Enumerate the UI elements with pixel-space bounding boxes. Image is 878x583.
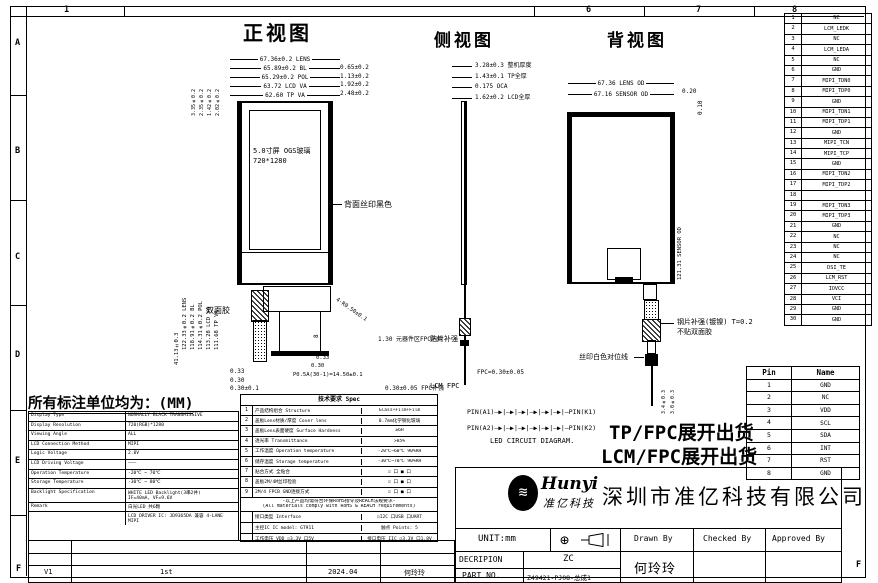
shipping-note-tp: TP/FPC展开出货 [609, 418, 754, 445]
fpc-dim: 0.30 [311, 363, 324, 369]
zone-tick [10, 95, 26, 96]
brand-name: Hunyi [541, 474, 598, 494]
side-dims: 3.28±0.3 整机厚度1.43±0.1 TP全厚0.175 OCA1.62±… [475, 61, 532, 104]
pin-name: SCL [792, 418, 859, 429]
pin-number: 27 [785, 284, 802, 293]
spec-label: Remark [29, 503, 126, 512]
spec-value: -20℃ ~ 70℃ [126, 470, 238, 479]
pin-name: MIPI_TDN1 [802, 108, 871, 116]
tp-pin-row: 5 SDA [747, 430, 859, 443]
pin-name: VCI [802, 295, 871, 303]
lcm-pin-row: 16 MIPI_TDN2 [784, 169, 872, 180]
revision-date: 2024.04 [328, 568, 358, 576]
leader-line [333, 204, 342, 205]
spec-row: Operation Temperature -20℃ ~ 70℃ [29, 470, 238, 480]
row-number: 8 [241, 477, 253, 486]
led-diodes: ―▶|―▶|―▶|―▶|―▶|―▶|― [494, 408, 568, 416]
zone-letter: E [15, 456, 20, 466]
row-number [241, 512, 253, 522]
lcm-pin-row: 3 NC [784, 34, 872, 45]
revision-desc: 1st [160, 568, 173, 576]
tp-spec-row: 4 透光率 Transmittance >85% [241, 437, 437, 447]
frame-zone-col-line [26, 6, 27, 576]
zone-letter: B [15, 146, 20, 156]
title-block-line [550, 528, 551, 551]
tail-dim: 3.0±0.3 [670, 378, 676, 414]
lcm-pin-row: 26 LCM_RST [784, 273, 872, 284]
lcm-pin-row: 10 MIPI_TDN1 [784, 107, 872, 118]
side-profile-bar [461, 101, 467, 285]
dim-line: 62.60 TP VA [230, 91, 340, 100]
title-block-line [523, 551, 524, 583]
spec-label [29, 512, 126, 525]
fpc-dim: 0.30 [230, 377, 259, 386]
pin-name: MIPI_TCP [802, 150, 871, 158]
pin-name: IOVCC [802, 285, 871, 293]
tp-spec-row: 7 贴合方式 全贴合 ☑ 口 ■ 口 [241, 467, 437, 477]
dim-line: 67.36±0.2 LENS [230, 55, 340, 64]
dim-line: 67.36 LENS OD [568, 78, 674, 89]
pin-name: MIPI_TDP3 [802, 212, 871, 220]
spec-row: Backlight Specification WHITE LED Backli… [29, 489, 238, 503]
spec-label: Viewing Angle [29, 431, 126, 440]
fpc-dim: 0.30±0.1 [230, 385, 259, 394]
spec-label: Operation Temperature [29, 470, 126, 479]
pin-name: MIPI_TDN3 [802, 202, 871, 210]
lcm-pin-row: 29 GND [784, 304, 872, 315]
back-silk-pad [645, 354, 658, 366]
lcm-pin-row: 7 MIPI_TDN0 [784, 75, 872, 86]
title-block-line [693, 528, 694, 583]
front-inner-line [239, 252, 331, 253]
led-pin-left: PIN(A2) [467, 424, 494, 432]
row-number [241, 523, 253, 533]
led-circuit: PIN(A1)―▶|―▶|―▶|―▶|―▶|―▶|―PIN(K1) PIN(A2… [467, 404, 596, 436]
tp-spec-row: 3 盖板Lens表面硬度 Surface Hardness ≥6H [241, 426, 437, 436]
zone-tick [534, 6, 535, 16]
fpc-height-dim: 8 [313, 316, 320, 338]
zone-tick [754, 6, 755, 16]
back-ic-pad [615, 277, 633, 283]
lcm-pin-row: 2 LCM_LEDK [784, 23, 872, 34]
led-pin-right: PIN(K2) [569, 424, 596, 432]
lcm-spec-table: Display Type NORMALLY BLACK TRANSMISSIVE… [28, 411, 239, 541]
frame-zone-row-line [10, 16, 864, 17]
fpc-dim: 0.33 [230, 368, 259, 377]
row-value: Glass+Film+Film [362, 408, 437, 413]
row-label: 工作温度 Operation temperature [253, 448, 362, 454]
tp-pin-row: 1 GND [747, 380, 859, 393]
row-label: 贴合方式 全贴合 [253, 469, 362, 475]
front-active-area [249, 110, 321, 250]
tail-dim: 3.4±0.3 [661, 378, 667, 414]
pin-number: 6 [747, 443, 792, 455]
decripion-label: DECRIPION [459, 555, 502, 564]
front-left-dims: 122.33±0.2 LENS118.91±0.2 BL114.31±0.2 P… [182, 128, 220, 350]
zone-letter: C [15, 252, 20, 262]
dim-label: 2.48±0.2 [340, 90, 369, 99]
revision-line [28, 565, 455, 566]
row-value: -20℃~60℃ 90%RH [362, 449, 437, 454]
unit-label: UNIT:mm [478, 534, 516, 544]
lcm-pin-row: 27 IOVCC [784, 283, 872, 294]
revision-version: V1 [44, 568, 52, 576]
row-value: ☑ 口 ■ 口 [362, 489, 437, 495]
leader-line [452, 87, 472, 88]
pin-name: MIPI_TDN0 [802, 77, 871, 85]
pin-number: 13 [785, 139, 802, 148]
spec-label: Display Resolution [29, 422, 126, 431]
pin-name: DSI_TE [802, 264, 871, 272]
tp-spec-note: -以上产品均需符合环保RoHS指令及REACH法规要求- (All materi… [241, 498, 437, 512]
pin-number: 18 [785, 191, 802, 200]
pin-number: 7 [747, 455, 792, 467]
row-label: 产品结构组合 Structure [253, 408, 362, 414]
lcm-pin-row: 11 MIPI_TDP1 [784, 117, 872, 128]
pin-name: NC [802, 14, 871, 22]
pin-name: GND [802, 129, 871, 137]
spec-label: Storage Temperature [29, 479, 126, 488]
front-screen-text: 5.0寸屏 OGS玻璃 720*1280 [253, 146, 311, 166]
dim-label: 118.91±0.2 BL [190, 128, 196, 350]
spec-row: LCD Connection Method MIPI [29, 441, 238, 451]
dim-label: 114.31±0.2 POL [198, 128, 204, 350]
tp-spec-row: 6 储存温度 Storage temperature -30℃~70℃ 90%R… [241, 457, 437, 467]
pin-number: 4 [747, 417, 792, 429]
pin-name: LCM_LEDK [802, 25, 871, 33]
lcm-pin-row: 17 MIPI_TDP2 [784, 179, 872, 190]
screen-size-label: 5.0寸屏 OGS玻璃 [253, 146, 311, 156]
row-label: 透光率 Transmittance [253, 438, 362, 444]
part-no-value: Z49421-PJ08-总成1 [527, 572, 591, 582]
pin-name: MIPI_TDN2 [802, 170, 871, 178]
tp-spec-rows-2: 接口类型 Interface ☑I2C 口USB 口UART 主控IC IC m… [241, 512, 437, 542]
tp-spec-row: 9 2M/4 FPCB GND连接方式 ☑ 口 ■ 口 [241, 488, 437, 498]
zone-number: 7 [696, 5, 701, 15]
front-top-dims: 67.36±0.2 LENS65.89±0.2 BL65.29±0.2 POL6… [230, 55, 340, 100]
dim-label: 0.65±0.2 [340, 64, 369, 73]
pin-name: NC [802, 56, 871, 64]
projection-target-icon: ⊕ [560, 531, 569, 549]
pin-number: 17 [785, 180, 802, 189]
dim-label: 1.13±0.2 [340, 73, 369, 82]
pin-number: 28 [785, 295, 802, 304]
pin-name: VDD [792, 405, 859, 416]
spec-row: Logic Voltage 2.8V [29, 450, 238, 460]
dim-label: 111.68 TP VA [214, 128, 220, 350]
title-block-line [765, 528, 766, 583]
side-label-top: 贴片补强 [430, 334, 458, 344]
pin-number: 25 [785, 263, 802, 272]
pin-number: 19 [785, 201, 802, 210]
pin-number: 8 [785, 87, 802, 96]
pin-name: SDA [792, 430, 859, 441]
dim-line: 63.72 LCD VA [230, 82, 340, 91]
zone-letter: A [15, 38, 20, 48]
pin-number: 21 [785, 222, 802, 231]
company-logo: ≋ [508, 475, 538, 511]
fpc-pitch-dim: P0.5A(30-1)=14.50±0.1 [293, 372, 363, 378]
front-view-title: 正视图 [243, 17, 312, 46]
spec-value: LCD DRIVER IC: JD9365DA 兼容 4-LANE MIPI [126, 512, 238, 525]
lcm-pin-row: 9 GND [784, 96, 872, 107]
tp-spec-table: 技术要求 Spec 1 产品结构组合 Structure Glass+Film+… [240, 394, 438, 542]
front-foam-dots [253, 320, 267, 362]
pin-name: GND [802, 222, 871, 230]
row-value: ☑ 口 ■ 口 [362, 469, 437, 475]
dim-label: 1.62±0.2 LCD全厚 [475, 93, 532, 104]
pin-name: NC [802, 233, 871, 241]
back-view-title: 背视图 [607, 26, 667, 51]
back-stiffener-note: 钢片补强(镀镍) T=0.2 不贴双面胶 [677, 317, 753, 337]
pin-number: 3 [747, 405, 792, 417]
tp-pin-row: 7 RST [747, 455, 859, 468]
lcm-pin-row: 4 LCM_LEDA [784, 44, 872, 55]
pin-number: 12 [785, 128, 802, 137]
lcm-pin-row: 6 GND [784, 65, 872, 76]
zone-tick [10, 305, 26, 306]
revision-line [306, 540, 307, 583]
pin-number: 15 [785, 159, 802, 168]
tp-spec-row: 2 盖板Lens材质/厚度 Cover lens 0.7mm化学钢化玻璃 [241, 416, 437, 426]
spec-value: NORMALLY BLACK TRANSMISSIVE [126, 412, 238, 421]
lcm-pin-row: 23 NC [784, 242, 872, 253]
row-label: 接口类型 Interface [253, 514, 362, 520]
zone-letter: F [856, 560, 861, 570]
zone-tick [10, 515, 26, 516]
note-line2: (All materials comply with RoHS & REACH … [241, 504, 437, 510]
leader-line [452, 66, 472, 67]
pin-number: 2 [785, 24, 802, 33]
zone-letter: D [15, 350, 20, 360]
lcm-pin-row: 30 GND [784, 314, 872, 325]
row-number: 1 [241, 406, 253, 415]
pin-name: MIPI_TDP2 [802, 181, 871, 189]
zone-tick [644, 6, 645, 16]
spec-label: LCD Driving Voltage [29, 460, 126, 469]
pin-number: 3 [785, 35, 802, 44]
dim-label: 2.02±0.2 [215, 70, 221, 116]
lcm-pin-row: 25 DSI_TE [784, 262, 872, 273]
screen-res-label: 720*1280 [253, 156, 311, 166]
tp-pin-row: 4 SCL [747, 417, 859, 430]
row-label: 主控IC IC model: GT911 [253, 525, 362, 531]
pin-number: 24 [785, 253, 802, 262]
fpc-left-dims: 0.33 0.30 0.30±0.1 [230, 368, 259, 394]
spec-row: LCD Driving Voltage ——— [29, 460, 238, 470]
tp-pin-header: Pin Name [747, 367, 859, 380]
side-view-title: 侧视图 [434, 26, 494, 51]
pin-number: 5 [747, 430, 792, 442]
tp-pin-rows: 1 GND 2 NC 3 VDD 4 SCL 5 SDA 6 INT 7 RST [747, 380, 859, 480]
row-label: 2M/4 FPCB GND连接方式 [253, 489, 362, 495]
row-label: 盖板Lens表面硬度 Surface Hardness [253, 428, 362, 434]
stiffener-note-line2: 不贴双面胶 [677, 327, 753, 337]
led-row: PIN(A2)―▶|―▶|―▶|―▶|―▶|―▶|―PIN(K2) [467, 420, 596, 436]
tp-spec-row: 主控IC IC model: GT911 触点 Points: 5 [241, 523, 437, 534]
dim-label: 122.33±0.2 LENS [182, 128, 188, 350]
spec-label: Logic Voltage [29, 450, 126, 459]
back-stiffener-hatch [642, 319, 661, 342]
row-value: >85% [362, 439, 437, 444]
back-tail-line [651, 366, 653, 406]
led-pin-right: PIN(K1) [569, 408, 596, 416]
pin-number: 6 [785, 66, 802, 75]
dim-label: 2.35±0.2 [199, 70, 205, 116]
back-top-dims: 67.36 LENS OD67.16 SENSOR OD [568, 78, 674, 100]
lcm-pin-row: 13 MIPI_TCN [784, 138, 872, 149]
tp-pin-header-pin: Pin [747, 367, 792, 379]
title-block-line [620, 528, 621, 583]
back-foam-dots [644, 300, 659, 321]
revision-name: 何玲玲 [404, 568, 425, 578]
pin-number: 30 [785, 315, 802, 324]
lcm-pin-row: 15 GND [784, 158, 872, 169]
pin-number: 16 [785, 170, 802, 179]
back-fpc-stem2 [647, 340, 656, 354]
shipping-note-lcm: LCM/FPC展开出货 [601, 442, 757, 469]
dim-line: 67.16 SENSOR OD [568, 89, 674, 100]
pin-number: 7 [785, 76, 802, 85]
dim-label: 3.28±0.3 整机厚度 [475, 61, 532, 72]
lcm-pin-row: 1 NC [784, 13, 872, 24]
dim-line: 65.29±0.2 POL [230, 73, 340, 82]
zone-number: 1 [64, 5, 69, 15]
leader-line [452, 98, 472, 99]
back-ic-area [607, 248, 641, 280]
pin-name: INT [792, 443, 859, 454]
tp-pin-row: 3 VDD [747, 405, 859, 418]
lcm-pin-row: 28 VCI [784, 294, 872, 305]
spec-value: MIPI [126, 441, 238, 450]
projection-cone-icon [580, 533, 616, 547]
back-print-label: 背面丝印黑色 [344, 199, 392, 210]
tp-pin-row: 6 INT [747, 443, 859, 456]
edge-dim: 0.20 [682, 88, 696, 95]
pin-name: GND [792, 380, 859, 391]
spec-value: -30℃ ~ 80℃ [126, 479, 238, 488]
tp-spec-title: 技术要求 Spec [241, 395, 437, 406]
pin-number: 1 [747, 380, 792, 392]
zone-tick [10, 410, 26, 411]
revision-line [28, 553, 455, 554]
spec-row: Viewing Angle ALL [29, 431, 238, 441]
stiffener-note-line1: 钢片补强(镀镍) T=0.2 [677, 317, 753, 327]
row-number: 9 [241, 488, 253, 497]
pin-number: 9 [785, 97, 802, 106]
row-number: 7 [241, 467, 253, 476]
edge-dim: 0.10 [697, 95, 704, 115]
zone-letter: F [16, 564, 21, 574]
spec-label: Backlight Specification [29, 489, 126, 502]
side-label-mid: FPC=0.30±0.05 [477, 369, 524, 376]
front-left-top-dims: 3.35±0.22.35±0.21.42±0.22.02±0.2 [191, 70, 221, 116]
row-number: 6 [241, 457, 253, 466]
zone-tick [124, 6, 125, 16]
tp-pin-header-name: Name [792, 367, 859, 378]
row-number: 4 [241, 437, 253, 446]
tp-spec-rows: 1 产品结构组合 Structure Glass+Film+Film 2 盖板L… [241, 406, 437, 498]
lcm-pin-table: 1 NC 2 LCM_LEDK 3 NC 4 LCM_LEDA 5 NC 6 G… [784, 14, 872, 326]
pin-name: GND [802, 66, 871, 74]
pin-name: RST [792, 455, 859, 466]
lcm-pin-row: 5 NC [784, 55, 872, 66]
revision-line [380, 540, 381, 583]
dim-label: 113.28 LCD VA [206, 128, 212, 350]
zone-number: 6 [586, 5, 591, 15]
row-value: -30℃~70℃ 90%RH [362, 459, 437, 464]
led-row: PIN(A1)―▶|―▶|―▶|―▶|―▶|―▶|―PIN(K1) [467, 404, 596, 420]
pin-number: 5 [785, 56, 802, 65]
spec-value: WHITE LED Backlight(3串2并) IF=40mA, VF=9.… [126, 489, 238, 502]
spec-row: Remark 白光LED 共6颗 [29, 503, 238, 513]
leader-line [634, 357, 644, 358]
pin-name: GND [802, 305, 871, 313]
pin-number: 20 [785, 211, 802, 220]
drawn-by-label: Drawn By [634, 534, 673, 543]
tp-spec-row: 接口类型 Interface ☑I2C 口USB 口UART [241, 512, 437, 523]
pin-name: MIPI_TDP1 [802, 118, 871, 126]
tp-pin-row: 2 NC [747, 392, 859, 405]
silk-align-label: 丝印白色对位线 [579, 352, 628, 362]
row-value: ☑ 口 ■ 口 [362, 479, 437, 485]
pin-number: 26 [785, 274, 802, 283]
leader-line [661, 323, 674, 324]
led-caption: LED CIRCUIT DIAGRAM. [490, 437, 574, 445]
pin-number: 11 [785, 118, 802, 127]
pin-name: MIPI_TDP0 [802, 87, 871, 95]
dim-label: 3.35±0.2 [191, 70, 197, 116]
revision-line [28, 577, 455, 578]
decripion-value: ZC [563, 554, 574, 564]
pin-number: 22 [785, 232, 802, 241]
side-stiffener-hatch [459, 318, 471, 336]
spec-row: Display Type NORMALLY BLACK TRANSMISSIVE [29, 412, 238, 422]
tape-label: 双面胶 [206, 305, 230, 316]
pin-number: 4 [785, 45, 802, 54]
brand-name-cn: 准亿科技 [543, 495, 595, 511]
revision-line [71, 540, 72, 583]
pin-name: NC [802, 243, 871, 251]
row-label: 储存温度 Storage temperature [253, 459, 362, 465]
zone-tick [10, 200, 26, 201]
back-right-dim: 121.31 SENSOR OD [677, 150, 683, 280]
lcm-pin-row: 19 MIPI_TDN3 [784, 200, 872, 211]
lcm-pin-row: 8 MIPI_TDP0 [784, 86, 872, 97]
row-label: 盖板2M/4M丝印检验 [253, 479, 362, 485]
pin-number: 14 [785, 149, 802, 158]
pin-number: 2 [747, 392, 792, 404]
row-number: 3 [241, 426, 253, 435]
front-fpc-shoulder [263, 286, 331, 312]
tp-spec-row: 5 工作温度 Operation temperature -20℃~60℃ 90… [241, 447, 437, 457]
spec-row: LCD DRIVER IC: JD9365DA 兼容 4-LANE MIPI [29, 512, 238, 525]
fpc-dim: 0.33 [316, 355, 329, 361]
spec-label: LCD Connection Method [29, 441, 126, 450]
pin-name: LCM_RST [802, 274, 871, 282]
dim-label: 1.42±0.2 [207, 70, 213, 116]
spec-label: Display Type [29, 412, 126, 421]
pin-number: 10 [785, 108, 802, 117]
spec-value: 白光LED 共6颗 [126, 503, 238, 512]
dim-line: 65.89±0.2 BL [230, 64, 340, 73]
led-pin-left: PIN(A1) [467, 408, 494, 416]
row-number: 5 [241, 447, 253, 456]
pin-name: GND [802, 98, 871, 106]
spec-value: 2.8V [126, 450, 238, 459]
front-right-dims: 0.65±0.21.13±0.21.92±0.22.48±0.2 [340, 64, 369, 99]
pin-name: GND [802, 316, 871, 324]
